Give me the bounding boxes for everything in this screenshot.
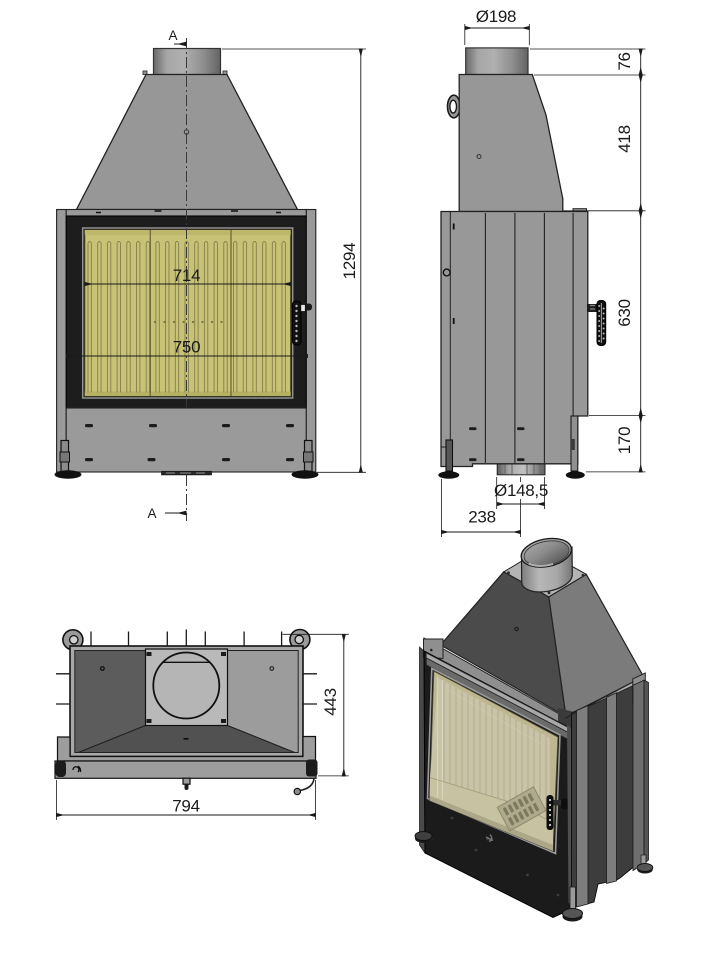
svg-text:238: 238	[468, 508, 495, 527]
svg-text:443: 443	[321, 688, 340, 715]
svg-text:Ø148,5: Ø148,5	[494, 481, 548, 500]
svg-text:170: 170	[615, 427, 634, 454]
svg-text:750: 750	[173, 338, 200, 357]
svg-text:A: A	[168, 28, 177, 43]
svg-text:630: 630	[615, 299, 634, 326]
svg-text:Ø198: Ø198	[476, 7, 516, 26]
svg-text:A: A	[147, 506, 156, 521]
svg-text:76: 76	[615, 52, 634, 70]
svg-text:794: 794	[172, 797, 199, 816]
svg-text:1294: 1294	[340, 243, 359, 280]
svg-text:418: 418	[615, 125, 634, 152]
svg-text:714: 714	[173, 266, 200, 285]
